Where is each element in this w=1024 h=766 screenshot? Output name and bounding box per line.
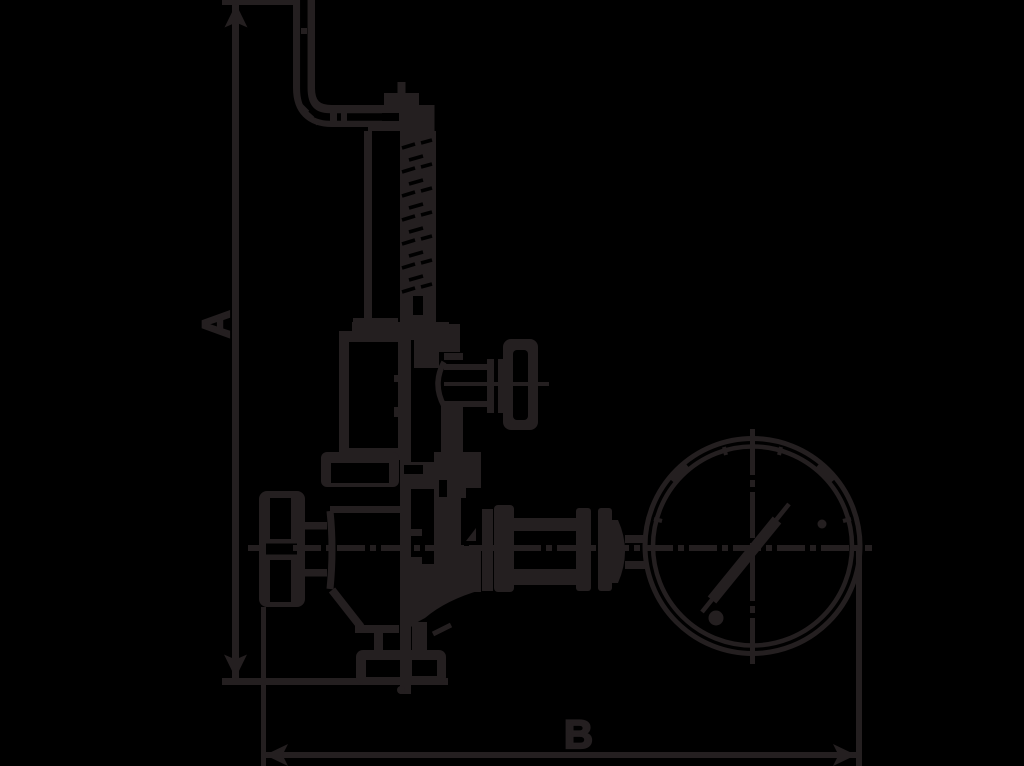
- svg-text:A: A: [196, 311, 238, 338]
- svg-text:B: B: [564, 713, 593, 757]
